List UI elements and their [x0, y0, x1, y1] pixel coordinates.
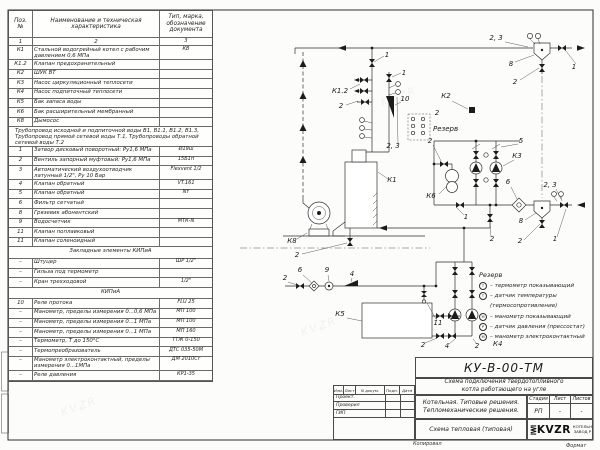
row-doc: Ø19ш	[160, 147, 212, 156]
table-row: 5Клапан обратныйNY	[9, 190, 212, 200]
callout-leader	[515, 55, 534, 62]
callout-leader	[303, 275, 312, 283]
sheets-value: -	[570, 403, 593, 419]
parts-table-header: Поз. № Наименование и техническая характ…	[9, 11, 212, 38]
callout-label: 2	[283, 274, 288, 282]
copied-label: Копировал	[413, 441, 442, 447]
row-pos: 11	[9, 228, 33, 237]
callout-leader	[347, 318, 362, 321]
project-name-line2: Тепломеханические решения.	[423, 407, 519, 415]
stage-value: РП	[527, 403, 550, 419]
table-row: 9ВодосчетчикМТК-N	[9, 219, 212, 229]
row-doc: ТТЖ 0-150	[160, 338, 212, 347]
callout-label: 2	[490, 235, 495, 243]
row-name: Термопреобразователь	[33, 347, 160, 356]
callout-leader	[439, 186, 447, 194]
row-name: Манометр, пределы измерения 0...0,6 МПа	[33, 309, 160, 318]
row-doc: 15Б1п	[160, 157, 212, 166]
row-name: Клапан поплавковый	[33, 228, 160, 237]
callout-label: 1	[402, 69, 406, 77]
row-pos: К3	[9, 79, 33, 88]
logo-caption-line2: ЗАВОД Р	[574, 429, 592, 434]
callout-label: 8	[519, 217, 524, 225]
legend-item-text: – манометр показывающий	[490, 314, 571, 320]
callout-label: К5	[335, 310, 345, 318]
legend-item: Т– термометр показывающий	[479, 282, 599, 290]
callout-leader	[503, 160, 514, 166]
sig-row-gip: ГИП	[334, 410, 414, 418]
instrument-circle-icon: М	[479, 333, 487, 341]
row-name: Дымосос	[33, 118, 160, 127]
row-doc: МП 100	[160, 319, 212, 328]
table-row: К5Бак запаса воды	[9, 99, 212, 109]
project-name: Котельная. Типовые решения. Тепломеханич…	[415, 395, 527, 419]
row-pos: 2	[9, 157, 33, 166]
callout-leader	[557, 209, 566, 237]
row-doc: Flexvent 1/2	[160, 166, 212, 179]
legend-item-text: – датчик температуры	[490, 293, 557, 299]
row-pos: –	[9, 347, 33, 356]
row-pos: К4	[9, 89, 33, 98]
col-number: 3	[160, 38, 212, 45]
title-block: КУ-В-00-ТМ Схема подключения твердотопли…	[333, 357, 593, 440]
callout-leader	[392, 73, 401, 77]
row-pos: 10	[9, 299, 33, 308]
row-doc	[160, 228, 212, 237]
table-row: –Термометр, Т до 150°СТТЖ 0-150	[9, 338, 212, 348]
instrument-circle-icon: М	[479, 313, 487, 321]
sig-row-project: Проект.	[334, 394, 414, 402]
row-name: Манометр, пределы измерения 0...1 МПа	[33, 319, 160, 328]
row-name: Реле давления	[33, 371, 160, 380]
callout-label: 2	[428, 137, 433, 145]
col-number: 1	[9, 38, 33, 45]
legend-item-text: – датчик давления (прессостат)	[490, 324, 585, 330]
header-name: Наименование и техническая характеристик…	[33, 11, 160, 37]
callout-label: 2, 3	[489, 34, 502, 42]
legend-item-text: – термометр показывающий	[490, 283, 574, 289]
format-label: Формат	[566, 443, 586, 449]
row-name: Фильтр сетчатый	[33, 199, 160, 208]
row-doc	[160, 99, 212, 108]
row-pos: К2	[9, 70, 33, 79]
callout-label: 2	[475, 342, 480, 350]
row-pos: 4	[9, 180, 33, 189]
table-row: К1.2Клапан предохранительный	[9, 60, 212, 70]
table-row: –Манометр, пределы измерения 0...1 МПаМП…	[9, 319, 212, 329]
callout-label: 1	[385, 51, 389, 59]
table-row: 11Клапан соленоидный	[9, 238, 212, 248]
callout-leader	[350, 84, 360, 89]
row-doc	[160, 70, 212, 79]
row-pos: –	[9, 338, 33, 347]
table-section-row: Закладные элементы КИПиА	[9, 247, 212, 259]
legend-item: Р– датчик давления (прессостат)	[479, 323, 599, 331]
row-doc: ДТС 035-50М	[160, 347, 212, 356]
row-name: Грязевик абонентский	[33, 209, 160, 218]
logo-caption: КОТЕЛЬН ЗАВОД Р	[573, 425, 592, 435]
callout-leader	[524, 224, 540, 240]
callout-label: 1	[572, 63, 576, 71]
table-row: 11Клапан поплавковый	[9, 228, 212, 238]
drawing-title: Схема подключения твердотопливного котла…	[415, 378, 593, 395]
row-name: Вентиль запорный муфтовый: Ру1,6 МПа	[33, 157, 160, 166]
row-doc: FLU 25	[160, 299, 212, 308]
row-doc	[160, 118, 212, 127]
scheme-name: Схема тепловая (типовая)	[415, 419, 527, 440]
table-row: К8Дымосос	[9, 118, 212, 128]
reserve-label: Резерв	[479, 271, 599, 279]
signature-block: Изм. Лист N докум. Подп. Дата Проект. Пр…	[333, 385, 415, 440]
row-doc: 1/2"	[160, 278, 212, 287]
row-pos: К6	[9, 108, 33, 117]
header-doc: Тип, марка, обозначение документа	[160, 11, 212, 37]
callout-label: К1	[387, 176, 396, 184]
row-name: Манометр электроконтактный, пределы изме…	[33, 357, 160, 370]
row-pos: –	[9, 328, 33, 337]
legend-item-text: (термосопротивление)	[490, 303, 557, 309]
table-row: –ШтуцерШР 1/2"	[9, 259, 212, 269]
drawing-sheet: KVZR KVZR KVZR KVZR	[0, 0, 600, 450]
callout-label: К3	[512, 152, 521, 160]
legend-item-text: – манометр электроконтактный	[490, 334, 585, 340]
row-doc: NY	[160, 190, 212, 199]
table-row: К1Стальной водогрейный котел с рабочим д…	[9, 46, 212, 60]
instrument-circle-icon: Р	[479, 323, 487, 331]
row-pos: К8	[9, 118, 33, 127]
table-row: –Кран трехходовой1/2"	[9, 278, 212, 288]
legend-body: Т– термометр показывающийТ– датчик темпе…	[479, 282, 599, 341]
row-pos: –	[9, 357, 33, 370]
row-name: Автоматический воздухоотводчик латунный …	[33, 166, 160, 179]
row-pos: 5	[9, 190, 33, 199]
row-doc	[160, 199, 212, 208]
row-name: ШУК ВТ	[33, 70, 160, 79]
callout-label: 1	[464, 213, 468, 221]
row-pos: –	[9, 371, 33, 380]
row-doc: МТК-N	[160, 219, 212, 228]
row-doc	[160, 269, 212, 278]
row-name: Штуцер	[33, 259, 160, 268]
row-doc	[160, 108, 212, 117]
table-row: –Манометр электроконтактный, пределы изм…	[9, 357, 212, 371]
project-name-line1: Котельная. Типовые решения.	[423, 399, 520, 407]
row-name: Затвор дисковый поворотный: Ру1,6 МПа	[33, 147, 160, 156]
callout-leader	[452, 101, 468, 109]
callout-leader	[374, 56, 384, 62]
table-row: К4Насос подпиточный теплосети	[9, 89, 212, 99]
callout-label: 1	[553, 235, 557, 243]
row-doc: ДМ 2010Сг	[160, 357, 212, 370]
row-name: Клапан соленоидный	[33, 238, 160, 247]
row-name: Насос циркуляционный теплосети	[33, 79, 160, 88]
callout-label: 11	[434, 319, 443, 327]
row-pos: –	[9, 259, 33, 268]
instrument-legend: Резерв Т– термометр показывающийТ– датчи…	[479, 271, 599, 343]
row-name: Гильза под термометр	[33, 269, 160, 278]
drawing-title-line1: Схема подключения твердотопливного	[445, 379, 564, 386]
drawing-title-line2: котла работающего на угле	[462, 387, 546, 394]
row-pos: 3	[9, 166, 33, 179]
callout-label: 6	[298, 266, 303, 274]
table-note-row: Трубопровод исходной и подпиточной воды …	[9, 127, 212, 147]
callout-label: 2	[518, 237, 523, 245]
callout-label: 2, 3	[386, 142, 399, 150]
callout-label: 2, 3	[543, 181, 556, 189]
row-doc	[160, 60, 212, 69]
legend-item: М– манометр показывающий	[479, 313, 599, 321]
callout-leader	[520, 68, 539, 80]
row-doc	[160, 238, 212, 247]
row-name: Реле протока	[33, 299, 160, 308]
row-doc: КР1-35	[160, 371, 212, 380]
callout-label: 2	[295, 251, 300, 259]
parts-table: Поз. № Наименование и техническая характ…	[8, 10, 213, 382]
callout-leader	[425, 338, 437, 343]
callout-leader	[501, 144, 518, 147]
callout-leader	[511, 187, 517, 199]
instrument-circle-icon: Т	[479, 292, 487, 300]
callout-leader	[346, 101, 358, 105]
row-doc	[160, 209, 212, 218]
spring-icon	[530, 423, 537, 437]
row-name: Термометр, Т до 150°С	[33, 338, 160, 347]
table-section-row: КИПиА	[9, 288, 212, 300]
row-pos: –	[9, 278, 33, 287]
callout-leader	[351, 278, 352, 282]
callout-label: К1.2	[332, 87, 349, 95]
row-pos: –	[9, 319, 33, 328]
row-name: Клапан обратный	[33, 180, 160, 189]
logo-text: KVZR	[537, 424, 571, 436]
row-pos: –	[9, 309, 33, 318]
col-number: 2	[33, 38, 160, 45]
row-name: Клапан обратный	[33, 190, 160, 199]
row-doc: КВ	[160, 46, 212, 59]
row-doc: ШР 1/2"	[160, 259, 212, 268]
callout-leader	[288, 282, 297, 285]
instrument-circle-icon: Т	[479, 282, 487, 290]
parts-table-body: К1Стальной водогрейный котел с рабочим д…	[9, 46, 212, 381]
table-row: –Реле давленияКР1-35	[9, 371, 212, 381]
row-pos: К1	[9, 46, 33, 59]
row-doc	[160, 79, 212, 88]
callout-label: Резерв	[433, 125, 458, 133]
callout-label: 2	[435, 109, 440, 117]
callout-label: 2	[339, 102, 344, 110]
callout-label: 5	[519, 137, 524, 145]
row-name: Насос подпиточный теплосети	[33, 89, 160, 98]
row-name: Манометр, пределы измерения 0...1 МПа	[33, 328, 160, 337]
table-row: 4Клапан обратныйVT.161	[9, 180, 212, 190]
callout-label: 8	[509, 60, 514, 68]
row-doc: VT.161	[160, 180, 212, 189]
callout-label: 4	[445, 342, 449, 350]
row-pos: 6	[9, 199, 33, 208]
document-code: КУ-В-00-ТМ	[415, 357, 593, 378]
row-doc: МП 160	[160, 328, 212, 337]
table-row: К3Насос циркуляционный теплосети	[9, 79, 212, 89]
callout-label: 10	[401, 95, 410, 103]
row-pos: К5	[9, 99, 33, 108]
column-numbers-row: 1 2 3	[9, 38, 212, 46]
header-pos: Поз. №	[9, 11, 33, 37]
callout-label: К2	[441, 92, 451, 100]
callout-leader	[328, 275, 329, 281]
callout-leader	[302, 243, 347, 254]
row-name: Бак запаса воды	[33, 99, 160, 108]
row-pos: 9	[9, 219, 33, 228]
row-name: Стальной водогрейный котел с рабочим дав…	[33, 46, 160, 59]
callout-leader	[525, 213, 536, 220]
callout-label: 4	[350, 270, 354, 278]
table-row: 6Фильтр сетчатый	[9, 199, 212, 209]
callout-label: К8	[287, 237, 297, 245]
row-pos: 11	[9, 238, 33, 247]
row-pos: 1	[9, 147, 33, 156]
legend-item: М– манометр электроконтактный	[479, 333, 599, 341]
row-name: Клапан предохранительный	[33, 60, 160, 69]
row-pos: 8	[9, 209, 33, 218]
legend-item: Т– датчик температуры	[479, 292, 599, 300]
callout-label: 6	[506, 178, 511, 186]
row-name: Водосчетчик	[33, 219, 160, 228]
row-pos: К1.2	[9, 60, 33, 69]
callout-label: 2	[421, 341, 426, 349]
callout-label: К6	[426, 192, 436, 200]
logo-cell: KVZR КОТЕЛЬН ЗАВОД Р	[527, 419, 593, 440]
table-row: К6Бак расширительный мембранный	[9, 108, 212, 118]
callout-leader	[505, 42, 528, 47]
row-doc: МП 100	[160, 309, 212, 318]
table-row: 3Автоматический воздухоотводчик латунный…	[9, 166, 212, 180]
sig-row-checked: Проверил	[334, 402, 414, 410]
row-name: Бак расширительный мембранный	[33, 108, 160, 117]
sheet-value: -	[549, 403, 571, 419]
callout-leader	[397, 97, 398, 144]
callout-leader	[449, 339, 455, 344]
callout-label: 9	[325, 266, 330, 274]
table-row: –Гильза под термометр	[9, 269, 212, 279]
legend-item: (термосопротивление)	[479, 302, 599, 310]
callout-label: 2	[513, 78, 518, 86]
table-row: 2Вентиль запорный муфтовый: Ру1,6 МПа15Б…	[9, 157, 212, 167]
row-pos: –	[9, 269, 33, 278]
table-row: К2ШУК ВТ	[9, 70, 212, 80]
row-doc	[160, 89, 212, 98]
row-name: Кран трехходовой	[33, 278, 160, 287]
